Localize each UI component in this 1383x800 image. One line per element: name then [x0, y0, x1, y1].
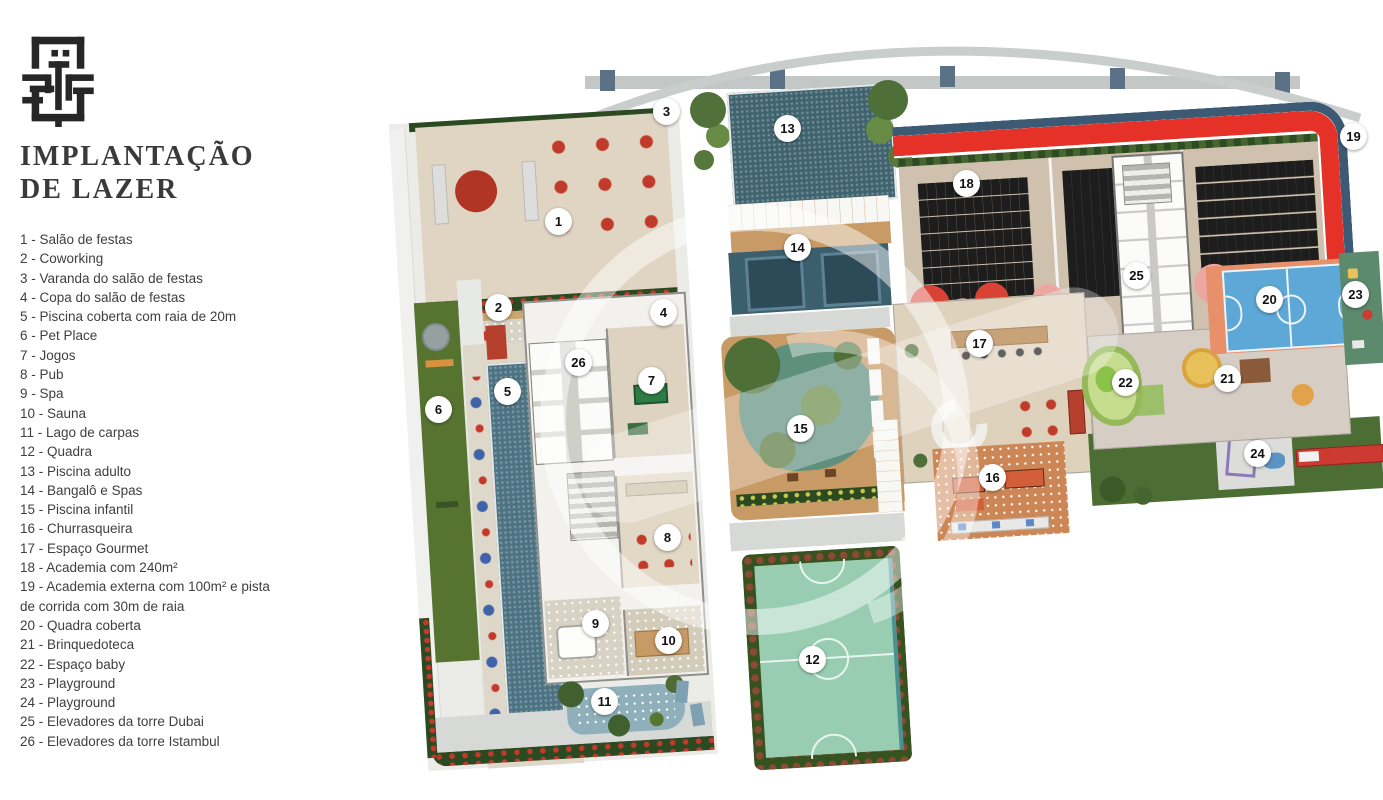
legend-item-11: 11 - Lago de carpas [20, 423, 288, 442]
plan-marker-24[interactable]: 24 [1244, 440, 1271, 467]
legend-item-9: 9 - Spa [20, 384, 288, 403]
legend-item-17: 17 - Espaço Gourmet [20, 539, 288, 558]
legend-item-24: 24 - Playground [20, 693, 288, 712]
legend-item-20: 20 - Quadra coberta [20, 616, 288, 635]
plan-marker-19[interactable]: 19 [1340, 123, 1367, 150]
plan-marker-13[interactable]: 13 [774, 115, 801, 142]
legend-item-3: 3 - Varanda do salão de festas [20, 269, 288, 288]
plan-marker-11[interactable]: 11 [591, 688, 618, 715]
page-title: IMPLANTAÇÃO DE LAZER [20, 140, 255, 206]
legend-item-13: 13 - Piscina adulto [20, 462, 288, 481]
legend-item-10: 10 - Sauna [20, 404, 288, 423]
legend-item-15: 15 - Piscina infantil [20, 500, 288, 519]
plan-marker-25[interactable]: 25 [1123, 262, 1150, 289]
page-title-line2: DE LAZER [20, 174, 178, 205]
plan-marker-26[interactable]: 26 [565, 349, 592, 376]
brand-logo [20, 33, 96, 127]
legend-item-25: 25 - Elevadores da torre Dubai [20, 712, 288, 731]
page-title-line1: IMPLANTAÇÃO [20, 141, 255, 172]
plan-marker-17[interactable]: 17 [966, 330, 993, 357]
legend-item-7: 7 - Jogos [20, 346, 288, 365]
plan-marker-6[interactable]: 6 [425, 396, 452, 423]
legend-item-4: 4 - Copa do salão de festas [20, 288, 288, 307]
plan-marker-10[interactable]: 10 [655, 627, 682, 654]
site-plan: 1234567891011121314151617181920212223242… [390, 30, 1383, 775]
plan-marker-1[interactable]: 1 [545, 208, 572, 235]
legend-item-5: 5 - Piscina coberta com raia de 20m [20, 307, 288, 326]
plan-marker-23[interactable]: 23 [1342, 281, 1369, 308]
plan-marker-18[interactable]: 18 [953, 170, 980, 197]
plan-marker-15[interactable]: 15 [787, 415, 814, 442]
legend-item-18: 18 - Academia com 240m² [20, 558, 288, 577]
legend-item-6: 6 - Pet Place [20, 326, 288, 345]
plan-marker-5[interactable]: 5 [494, 378, 521, 405]
plan-marker-16[interactable]: 16 [979, 464, 1006, 491]
legend-item-12: 12 - Quadra [20, 442, 288, 461]
plan-marker-2[interactable]: 2 [485, 294, 512, 321]
legend-item-8: 8 - Pub [20, 365, 288, 384]
legend-item-21: 21 - Brinquedoteca [20, 635, 288, 654]
legend-item-16: 16 - Churrasqueira [20, 519, 288, 538]
plan-marker-7[interactable]: 7 [638, 367, 665, 394]
plan-marker-12[interactable]: 12 [799, 646, 826, 673]
legend-item-2: 2 - Coworking [20, 249, 288, 268]
plan-marker-4[interactable]: 4 [650, 299, 677, 326]
plan-marker-9[interactable]: 9 [582, 610, 609, 637]
plan-marker-22[interactable]: 22 [1112, 369, 1139, 396]
legend-list: 1 - Salão de festas2 - Coworking3 - Vara… [20, 230, 288, 751]
legend-item-23: 23 - Playground [20, 674, 288, 693]
plan-marker-21[interactable]: 21 [1214, 365, 1241, 392]
legend-item-14: 14 - Bangalô e Spas [20, 481, 288, 500]
plan-marker-8[interactable]: 8 [654, 524, 681, 551]
legend-item-19: 19 - Academia externa com 100m² e pista … [20, 577, 288, 616]
marker-layer: 1234567891011121314151617181920212223242… [390, 30, 1383, 775]
plan-marker-20[interactable]: 20 [1256, 286, 1283, 313]
legend-item-1: 1 - Salão de festas [20, 230, 288, 249]
legend-item-22: 22 - Espaço baby [20, 655, 288, 674]
legend-item-26: 26 - Elevadores da torre Istambul [20, 732, 288, 751]
plan-marker-3[interactable]: 3 [653, 98, 680, 125]
plan-marker-14[interactable]: 14 [784, 234, 811, 261]
sidebar: IMPLANTAÇÃO DE LAZER 1 - Salão de festas… [0, 0, 370, 800]
